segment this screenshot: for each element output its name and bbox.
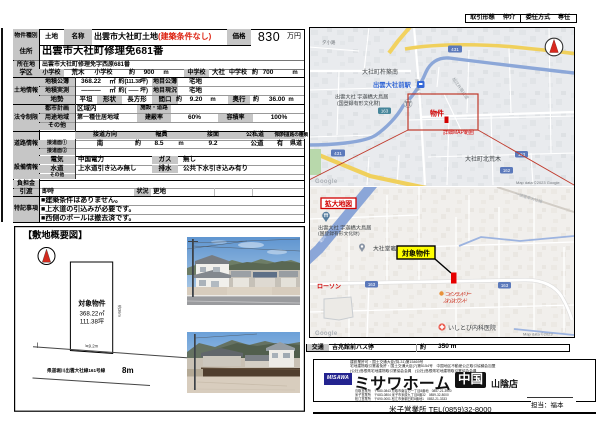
svg-text:≒9.2m: ≒9.2m bbox=[85, 344, 99, 349]
svg-text:約36m: 約36m bbox=[117, 305, 123, 318]
svg-text:県道堀川出雲大社線161号線: 県道堀川出雲大社線161号線 bbox=[47, 367, 106, 374]
svg-text:【敷地概要図】: 【敷地概要図】 bbox=[23, 229, 87, 240]
svg-text:111.38坪: 111.38坪 bbox=[80, 318, 104, 326]
svg-text:368.22㎡: 368.22㎡ bbox=[79, 310, 105, 318]
svg-text:8m: 8m bbox=[122, 366, 134, 375]
svg-text:対象物件: 対象物件 bbox=[77, 299, 105, 308]
